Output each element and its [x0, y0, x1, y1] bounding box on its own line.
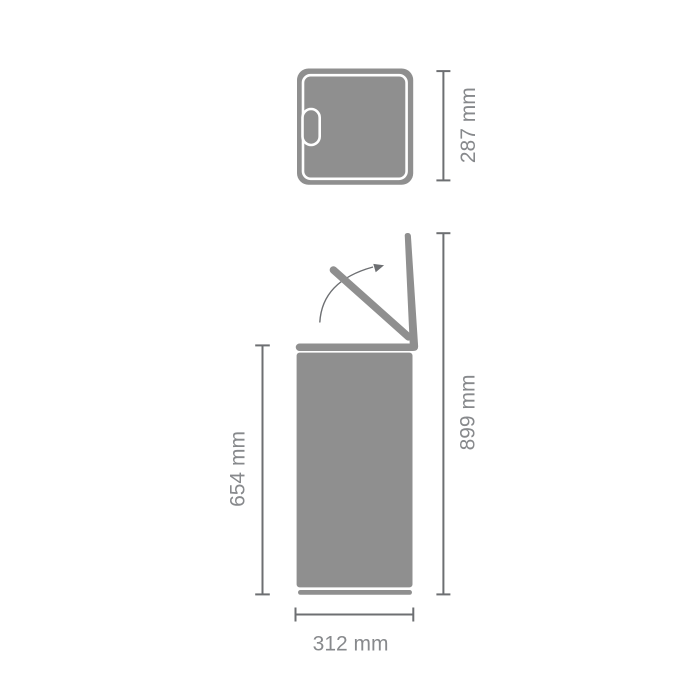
svg-text:287 mm: 287 mm	[457, 87, 480, 163]
svg-text:899 mm: 899 mm	[457, 375, 480, 451]
svg-text:654 mm: 654 mm	[226, 431, 249, 507]
svg-text:312 mm: 312 mm	[313, 632, 389, 655]
